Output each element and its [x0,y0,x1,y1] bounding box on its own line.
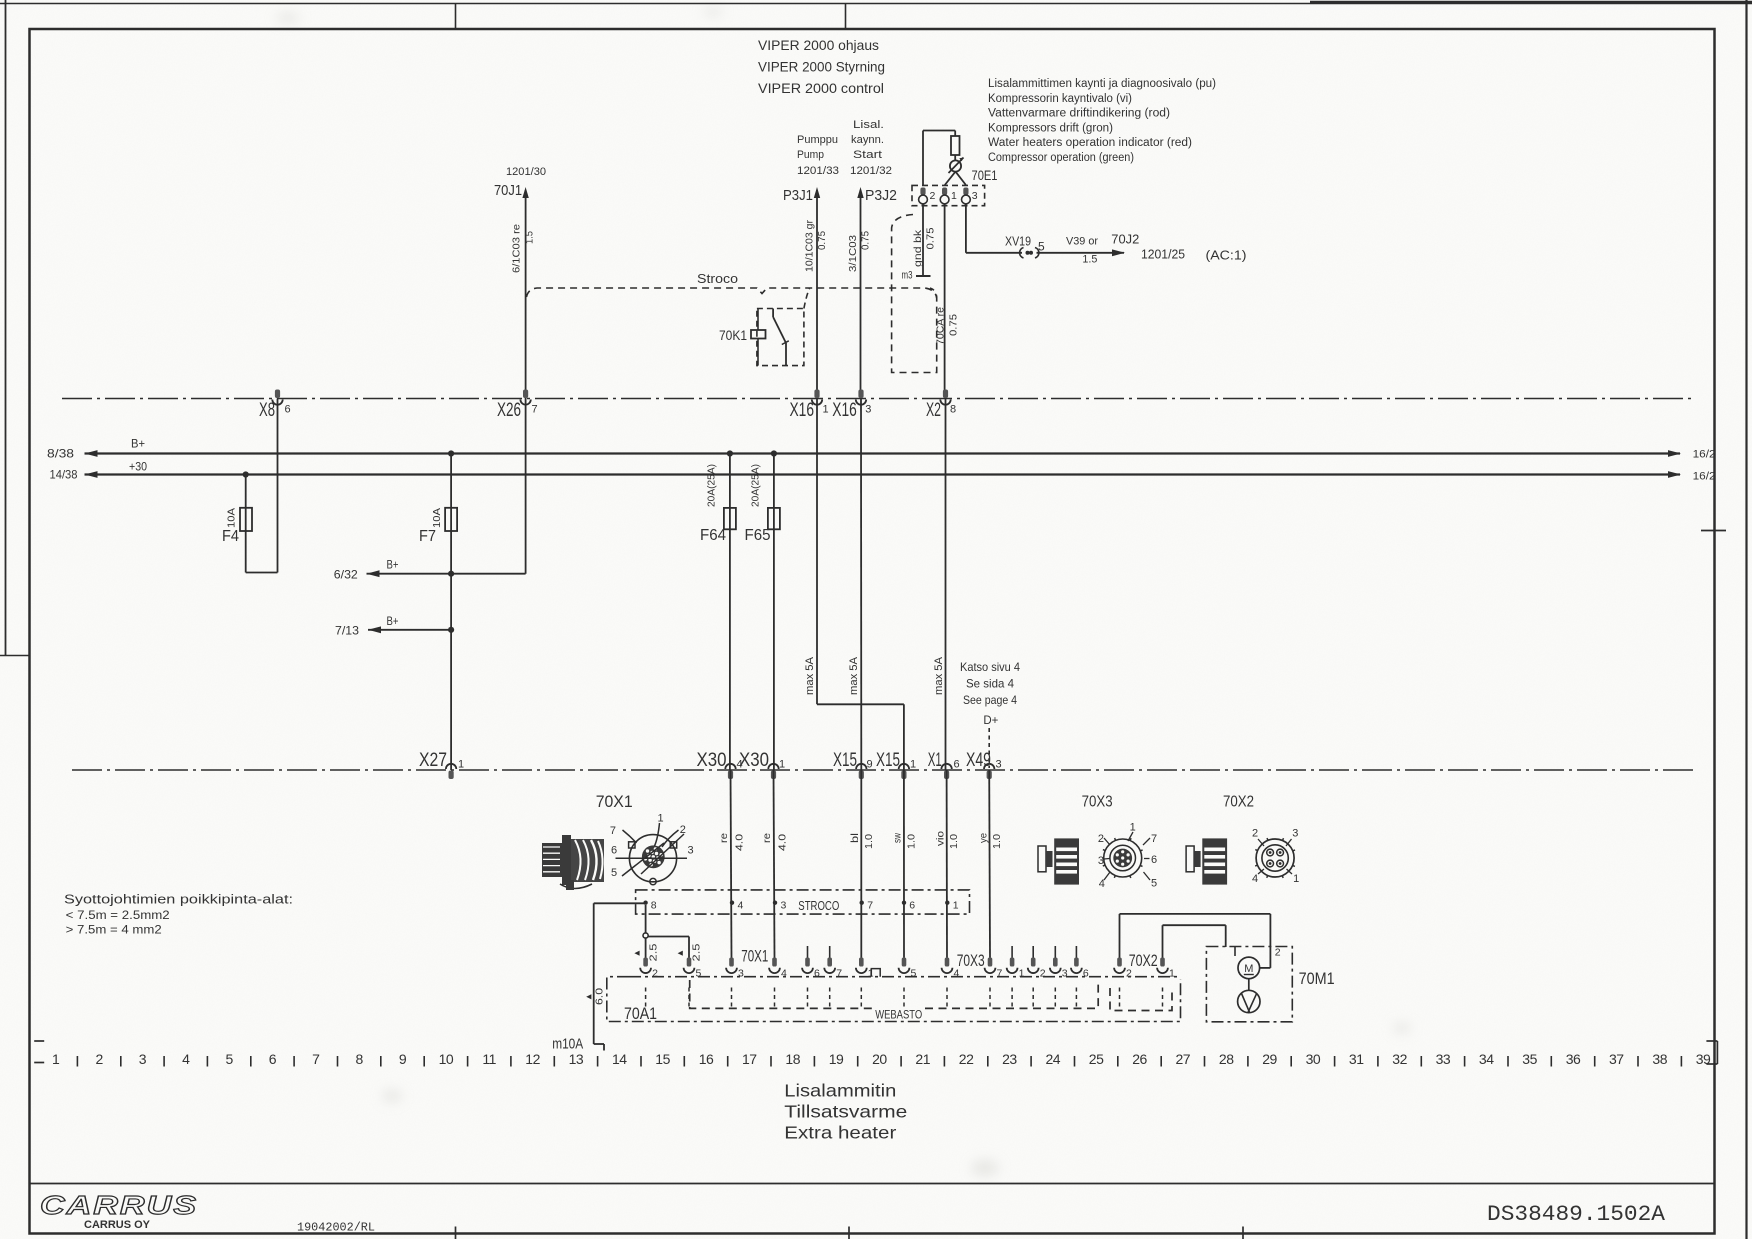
svg-text:re: re [761,833,773,843]
svg-text:Katso sivu 4: Katso sivu 4 [960,660,1020,674]
svg-text:5: 5 [1151,877,1157,889]
svg-text:3: 3 [1292,828,1298,840]
svg-text:3: 3 [688,845,694,857]
svg-text:1.5: 1.5 [524,231,536,244]
svg-text:+30: +30 [129,460,147,474]
svg-text:11: 11 [482,1051,496,1067]
svg-text:CARRUS OY: CARRUS OY [84,1219,151,1231]
svg-text:Pumppu: Pumppu [797,134,838,146]
svg-text:10A: 10A [431,508,443,528]
svg-text:8/38: 8/38 [47,447,74,461]
svg-text:70X1: 70X1 [741,947,768,966]
svg-text:8: 8 [651,899,657,911]
svg-text:6/1C03 re: 6/1C03 re [511,224,523,273]
svg-text:2: 2 [652,968,658,980]
svg-text:< 7.5m = 2.5mm2: < 7.5m = 2.5mm2 [66,908,170,922]
svg-text:3/1C03: 3/1C03 [847,235,859,272]
svg-text:7: 7 [836,968,842,980]
svg-text:P3J1: P3J1 [783,187,813,204]
svg-text:14: 14 [612,1051,627,1067]
svg-text:37: 37 [1609,1051,1624,1067]
svg-text:70A1: 70A1 [624,1004,657,1023]
svg-text:1: 1 [823,404,829,416]
svg-text:Kompressors drift (gron): Kompressors drift (gron) [988,122,1113,134]
svg-text:20A(25A): 20A(25A) [707,464,718,507]
svg-text:1201/30: 1201/30 [506,166,546,178]
svg-text:19: 19 [829,1051,844,1067]
svg-text:8: 8 [950,404,956,416]
svg-text:10/1C03 gr: 10/1C03 gr [804,219,816,272]
svg-text:31: 31 [1349,1051,1364,1067]
svg-text:3: 3 [1098,855,1104,867]
svg-text:6: 6 [1083,968,1089,980]
svg-text:Water heaters operation indica: Water heaters operation indicator (red) [988,137,1192,149]
svg-text:Start: Start [853,149,882,161]
svg-text:4: 4 [781,968,787,980]
svg-text:19042002/RL: 19042002/RL [297,1222,375,1235]
svg-text:Se sida 4: Se sida 4 [966,677,1014,691]
svg-text:X2: X2 [926,400,941,421]
svg-text:12: 12 [525,1051,540,1067]
svg-text:B+: B+ [131,437,145,451]
svg-text:3: 3 [738,968,744,980]
svg-text:7: 7 [1151,833,1157,845]
svg-text:7: 7 [312,1051,320,1067]
svg-text:re: re [718,833,730,843]
svg-text:max 5A: max 5A [804,656,816,695]
svg-text:m10A: m10A [552,1036,583,1053]
svg-text:B+: B+ [387,616,399,628]
svg-text:21: 21 [915,1051,930,1067]
svg-text:(AC:1): (AC:1) [1206,249,1247,263]
svg-text:3: 3 [865,404,871,416]
svg-text:F65: F65 [745,527,771,544]
svg-text:5: 5 [225,1051,233,1067]
svg-text:2: 2 [1275,946,1281,958]
svg-text:24: 24 [1046,1051,1061,1067]
svg-text:6/32: 6/32 [334,568,358,582]
svg-text:3: 3 [972,190,978,202]
svg-text:F4: F4 [222,528,239,545]
svg-text:0.75: 0.75 [860,231,872,250]
svg-text:4: 4 [182,1051,190,1067]
svg-text:See page 4: See page 4 [963,693,1017,707]
svg-text:bl: bl [849,833,861,843]
svg-text:WEBASTO: WEBASTO [875,1008,922,1022]
svg-text:3: 3 [1062,968,1068,980]
svg-text:VIPER 2000 control: VIPER 2000 control [758,80,884,96]
svg-text:18: 18 [785,1051,800,1067]
svg-text:6: 6 [909,899,915,911]
svg-text:26: 26 [1132,1051,1147,1067]
svg-text:1: 1 [1019,968,1025,980]
svg-text:5: 5 [696,968,702,980]
svg-text:kaynn.: kaynn. [851,134,884,146]
svg-text:max 5A: max 5A [933,656,945,695]
svg-text:4.0: 4.0 [777,834,789,851]
svg-text:3: 3 [781,899,787,911]
svg-text:XV19: XV19 [1005,235,1031,249]
svg-text:4: 4 [1252,873,1258,885]
svg-text:4: 4 [738,899,744,911]
svg-text:X49: X49 [966,750,991,771]
svg-text:X27: X27 [419,750,447,771]
svg-text:9: 9 [399,1051,407,1067]
svg-text:70J1: 70J1 [494,182,522,199]
svg-text:70X2: 70X2 [1223,794,1254,811]
svg-text:7/13: 7/13 [335,624,359,638]
svg-text:DS38489.1502A: DS38489.1502A [1487,1201,1666,1227]
svg-text:1.0: 1.0 [863,834,875,849]
svg-text:Lisalammitin: Lisalammitin [784,1081,896,1101]
svg-text:2.5: 2.5 [691,943,703,961]
svg-text:ye: ye [978,833,990,843]
svg-text:max 5A: max 5A [848,656,860,695]
svg-text:F64: F64 [700,527,726,544]
svg-text:0.75: 0.75 [925,227,937,249]
svg-text:70E1: 70E1 [972,168,998,183]
svg-text:1.5: 1.5 [1082,254,1097,266]
svg-text:m3: m3 [902,270,913,282]
svg-text:1: 1 [910,759,916,771]
svg-text:8: 8 [355,1051,363,1067]
svg-text:33: 33 [1436,1051,1451,1067]
svg-text:V39 or: V39 or [1066,236,1098,248]
svg-text:70K1: 70K1 [719,328,747,343]
svg-text:7: 7 [610,825,616,837]
svg-text:M: M [1244,963,1253,975]
svg-text:X1: X1 [928,750,942,771]
svg-text:1: 1 [953,899,959,911]
svg-text:X30: X30 [697,750,727,771]
svg-text:4: 4 [954,968,960,980]
svg-text:25: 25 [1089,1051,1104,1067]
svg-text:B+: B+ [387,560,399,572]
svg-text:X16: X16 [832,400,857,421]
svg-text:1: 1 [1169,968,1175,980]
svg-text:Lisal.: Lisal. [853,119,884,131]
svg-text:Stroco: Stroco [697,272,738,286]
svg-text:16/2: 16/2 [1693,471,1716,483]
svg-text:2: 2 [1126,968,1132,980]
svg-text:2: 2 [680,824,686,836]
svg-text:vio: vio [935,831,947,846]
svg-text:Kompressorin kayntivalo (vi): Kompressorin kayntivalo (vi) [988,93,1132,105]
svg-text:1: 1 [951,190,957,202]
svg-text:2: 2 [95,1051,103,1067]
svg-text:Extra heater: Extra heater [784,1123,896,1143]
svg-text:6: 6 [611,845,617,857]
svg-text:gnd bk: gnd bk [912,229,924,267]
svg-text:6.0: 6.0 [594,988,606,1005]
svg-text:20: 20 [872,1051,887,1067]
svg-text:Syottojohtimien poikkipinta-al: Syottojohtimien poikkipinta-alat: [64,893,293,907]
svg-text:Pump: Pump [797,149,824,161]
svg-text:7: 7 [997,968,1003,980]
svg-text:X15: X15 [876,750,900,771]
svg-text:1201/25: 1201/25 [1141,248,1185,262]
svg-text:2: 2 [1098,833,1104,845]
svg-text:1.0: 1.0 [948,834,960,849]
svg-text:20A(25A): 20A(25A) [751,464,762,507]
svg-text:34: 34 [1479,1051,1494,1067]
svg-text:X26: X26 [497,400,521,421]
svg-text:14/38: 14/38 [50,468,78,482]
svg-text:70X2: 70X2 [1129,951,1158,970]
svg-text:1: 1 [52,1051,60,1067]
svg-text:2: 2 [930,190,936,202]
svg-text:23: 23 [1002,1051,1017,1067]
svg-text:D+: D+ [983,713,998,727]
svg-text:VIPER 2000 Styrning: VIPER 2000 Styrning [758,59,885,75]
svg-text:15: 15 [655,1051,670,1067]
svg-text:36: 36 [1566,1051,1581,1067]
svg-text:X16: X16 [790,400,815,421]
svg-text:0.75: 0.75 [948,314,960,336]
svg-text:5: 5 [611,867,617,879]
svg-text:7: 7 [867,899,873,911]
svg-text:1201/32: 1201/32 [850,165,892,177]
svg-text:X15: X15 [833,750,857,771]
svg-text:27: 27 [1176,1051,1191,1067]
svg-text:4.0: 4.0 [734,834,746,851]
svg-text:70J2: 70J2 [1111,232,1139,247]
svg-text:22: 22 [959,1051,974,1067]
svg-text:P3J2: P3J2 [865,187,897,204]
svg-text:STROCO: STROCO [798,899,839,913]
svg-text:X8: X8 [259,400,275,421]
svg-text:70X1: 70X1 [596,792,633,811]
svg-text:1.0: 1.0 [906,834,918,849]
svg-text:F7: F7 [419,528,436,545]
svg-text:29: 29 [1262,1051,1277,1067]
svg-text:1: 1 [1293,873,1299,885]
svg-text:70X3: 70X3 [1082,794,1113,811]
svg-text:10A: 10A [226,508,238,528]
svg-text:5: 5 [911,968,917,980]
svg-text:1: 1 [458,759,464,771]
svg-text:CARRUS: CARRUS [40,1190,198,1220]
svg-text:6: 6 [954,759,960,771]
svg-text:32: 32 [1392,1051,1407,1067]
svg-text:16: 16 [699,1051,714,1067]
svg-text:2: 2 [1252,828,1258,840]
svg-text:70CA re: 70CA re [935,307,947,345]
svg-text:28: 28 [1219,1051,1234,1067]
svg-text:16/2: 16/2 [1693,449,1716,461]
svg-text:VIPER 2000 ohjaus: VIPER 2000 ohjaus [758,37,879,53]
svg-text:70M1: 70M1 [1299,969,1335,988]
svg-text:6: 6 [269,1051,277,1067]
svg-text:6: 6 [1151,854,1157,866]
svg-text:30: 30 [1306,1051,1321,1067]
svg-text:38: 38 [1652,1051,1667,1067]
svg-text:0.75: 0.75 [816,231,828,250]
svg-text:2: 2 [1040,968,1046,980]
svg-text:9: 9 [867,759,873,771]
svg-text:2.5: 2.5 [648,943,660,961]
svg-text:3: 3 [996,759,1002,771]
svg-text:10: 10 [439,1051,454,1067]
svg-text:sw: sw [892,833,904,843]
svg-text:7: 7 [532,404,538,416]
svg-text:1: 1 [779,759,785,771]
svg-text:5: 5 [1038,240,1045,254]
svg-text:1.0: 1.0 [991,834,1003,849]
svg-text:X30: X30 [739,750,769,771]
svg-text:Tillsatsvarme: Tillsatsvarme [784,1102,907,1122]
svg-text:6: 6 [285,404,291,416]
svg-text:Vattenvarmare driftindikering: Vattenvarmare driftindikering (rod) [988,108,1170,120]
svg-text:1201/33: 1201/33 [797,165,839,177]
svg-text:35: 35 [1522,1051,1537,1067]
svg-text:17: 17 [742,1051,757,1067]
svg-text:6: 6 [814,968,820,980]
svg-text:Lisalammittimen kaynti ja diag: Lisalammittimen kaynti ja diagnoosivalo … [988,78,1216,90]
svg-text:1: 1 [658,813,664,825]
svg-text:70X3: 70X3 [957,951,985,970]
svg-text:3: 3 [139,1051,147,1067]
svg-text:13: 13 [569,1051,584,1067]
svg-text:Compressor operation (green): Compressor operation (green) [988,152,1134,164]
svg-text:> 7.5m = 4 mm2: > 7.5m = 4 mm2 [66,923,162,937]
